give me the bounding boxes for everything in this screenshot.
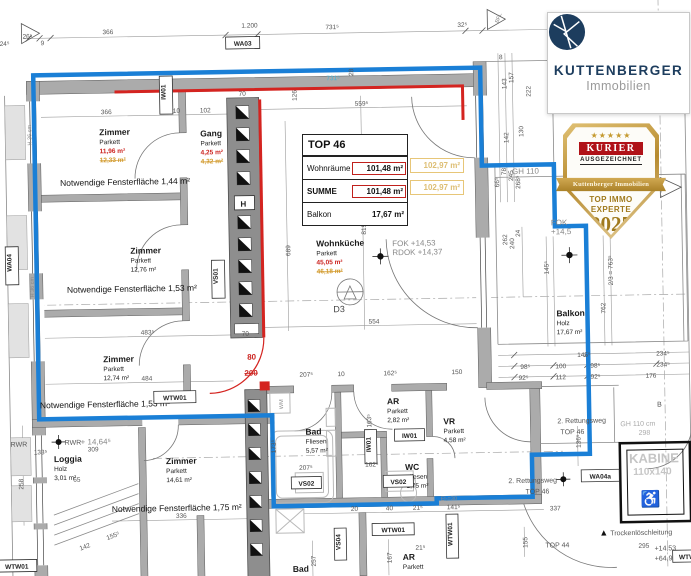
room-label-bad2: Bad [293,564,309,574]
kurier-logo: KURIER [579,142,642,155]
component-label-iw01b: IW01 [366,437,373,453]
dim-label: 483⁵ [141,329,155,336]
wm-label: WM [279,399,285,409]
component-label-wa03: WA03 [234,41,252,48]
dim-label-changed: 80 [247,353,257,362]
room-label-zimmer2: ZimmerParkett12,76 m² [130,245,162,274]
dim-label: 163⁵ [366,414,373,428]
dim-label: 92⁵ [519,375,529,382]
window-note-3: Notwendige Fensterfläche 1,53 m² [40,398,170,410]
dim-label: 257 [311,555,318,566]
room-label-balkon: BalkonHolz17,67 m² [556,308,585,336]
dim-label: 21⁵ [415,545,425,552]
dim-label: 142 [79,542,92,553]
top46-note-2: TOP 46 [525,488,549,495]
rwr-note-2: RWR [65,440,82,447]
dim-label: 222 [525,85,532,96]
dim-label: 731⁵ [325,24,339,31]
dim-label: 554 [369,318,380,325]
room-label-ar: ARParkett2,82 m² [387,396,410,424]
dim-label: 32⁵ [457,22,467,29]
svg-text:WC: WC [405,462,419,472]
dim-label: 141⁵ [447,504,461,511]
badge-ribbon: Kuttenberger Immobilien [556,177,666,192]
survey-markers [48,245,581,495]
component-label-wa04: WA04 [6,254,13,272]
dim-label: 142 [503,132,510,143]
dim-label: 28 [348,68,355,76]
room-label-gang: GangParkett4,25 m²4,32 m² [200,128,224,165]
brand-logo-icon [600,21,638,59]
room-label-zimmer4: ZimmerParkett14,61 m² [166,456,198,485]
dim-label: 207⁵ [299,465,313,472]
svg-text:11,96 m²: 11,96 m² [99,148,126,155]
svg-text:Holz: Holz [54,466,67,473]
dim-label: 20 [351,506,359,513]
dim-label: 336 [176,513,187,520]
table-row-balkon: Balkon 17,67 m² [303,202,407,225]
gh-note-2: GH 110 cm [620,421,655,429]
dim-label: 1.200 [241,22,258,29]
revised-area-summe: 102,97 m² [410,180,464,195]
dim-label: 167 [387,552,394,563]
svg-text:Fliesen: Fliesen [306,438,327,445]
dim-label: 92⁵ [590,374,600,381]
dim-label: 366 [101,109,112,116]
dim-label: 130 [518,126,525,137]
svg-text:Parkett: Parkett [130,257,151,264]
dim-label: 26⁵ [22,33,32,40]
svg-text:Zimmer: Zimmer [99,127,131,138]
svg-text:AR: AR [387,396,399,406]
row-label: Balkon [303,210,356,219]
dim-label: 10 [337,371,345,378]
component-label-iw01a: IW01 [160,84,167,100]
svg-text:Loggia: Loggia [54,454,82,464]
dim-label: 9 [41,40,45,47]
svg-text:46,18 m²: 46,18 m² [317,268,344,275]
dim-label: 2/3 = 763⁵ [607,255,615,285]
dim-label: 234⁵ [656,350,670,357]
dim-label: 10 [173,108,181,115]
component-label-wtw01d: WTW01 [5,564,29,571]
dim-label: 126 [291,90,298,101]
dim-label: 112 [556,374,567,381]
dim-label: 8 [499,54,503,61]
component-label-vs02b: VS02 [390,479,406,486]
room-label-zimmer1: ZimmerParkett11,96 m²12,33 m² [99,127,131,165]
dim-label: 155 [522,537,529,548]
dim-label: 162⁵ [365,461,379,468]
svg-text:17,67 m²: 17,67 m² [557,329,584,336]
revised-area-wohnraeume: 102,97 m² [410,158,464,173]
room-label-ar2: ARParkett [403,552,424,571]
dim-label: 78 [501,168,508,176]
svg-text:Parkett: Parkett [387,408,408,415]
b-axis-label: B [657,401,662,408]
svg-text:Parkett: Parkett [166,468,187,475]
svg-text:Zimmer: Zimmer [130,245,162,256]
wheelchair-icon: ♿ [641,490,661,509]
dim-label: 234⁵ [656,361,670,368]
dim-label: 40 [386,505,394,512]
svg-text:12,33 m²: 12,33 m² [100,157,127,164]
row-value: 101,48 m² [352,162,406,175]
svg-text:4,25 m²: 4,25 m² [201,149,224,156]
svg-text:Gang: Gang [200,128,222,138]
svg-text:4,58 m²: 4,58 m² [444,437,467,444]
dim-label: 366 [102,29,113,36]
elevator-label: KABINE [629,450,679,466]
svg-text:Parkett: Parkett [103,366,124,373]
svg-text:2,82 m²: 2,82 m² [387,417,410,424]
row-value: 17,67 m² [356,210,407,219]
dim-label: 762 [600,302,607,313]
window-note-2: Notwendige Fensterfläche 1,53 m² [67,283,197,295]
dim-label-old: 200 [244,369,258,378]
dim-label: 176 [645,373,656,380]
dim-label: 24⁵ [0,41,10,48]
row-label: Wohnräume [303,164,352,173]
dim-label: 102 [200,107,211,114]
badge-title-line1: TOP IMMO [589,195,632,204]
svg-text:12,76 m²: 12,76 m² [131,266,158,273]
dim-label: 66⁵ [494,177,501,187]
dim-label: 309 [88,446,99,453]
svg-text:14,61 m²: 14,61 m² [166,477,193,484]
window-note-1: Notwendige Fensterfläche 1,44 m² [60,176,190,188]
award-badge: ★★★★★ KURIER AUSGEZEICHNET TOP IMMO EXPE… [563,121,659,239]
chimney-shaft [227,97,263,338]
svg-text:12,74 m²: 12,74 m² [103,375,130,382]
svg-text:Parkett: Parkett [200,140,221,147]
dim-label: 65 [73,477,81,484]
stars-icon: ★★★★★ [591,131,632,140]
badge-award-text: AUSGEZEICHNET [580,157,642,165]
svg-text:Parkett: Parkett [99,139,120,146]
component-label-wa04a: WA04a [590,473,612,480]
dim-label: 155⁵ [106,531,121,542]
dim-label: 173⁵ [271,439,278,453]
svg-text:45,05 m²: 45,05 m² [316,259,343,266]
svg-text:Holz: Holz [557,320,570,327]
component-label-vs02a: VS02 [298,481,314,488]
dim-label: 484 [141,375,152,382]
rwr-note: RWR [11,442,28,449]
dry-riser-note: Trockenlöschleitung [610,529,672,537]
area-table: TOP 46 Wohnräume 101,48 m² SUMME 101,48 … [302,134,408,226]
brand-logo: KUTTENBERGER Immobilien [547,12,690,114]
dim-label: 145⁵ [577,352,591,359]
svg-text:Parkett: Parkett [403,564,424,571]
dim-label: 150 [451,369,462,376]
room-label-vr: VRParkett4,58 m² [443,416,466,444]
area-table-title: TOP 46 [303,135,407,156]
svg-text:Parkett: Parkett [316,250,337,257]
component-label-iw01c: IW01 [402,433,418,440]
escape-route-note: 2. Rettungsweg [557,417,606,425]
parapet-note-1: H 36 cm [27,125,33,146]
escape-route-note-2: 2. Rettungsweg [508,477,557,485]
dim-label: 295 [638,543,649,550]
component-label-vs04: VS04 [335,534,342,550]
component-label-wtw01e: WTW01 [679,554,691,561]
room-label-wohnkueche: WohnkücheParkett45,05 m²46,18 m² [316,238,365,276]
brand-name: KUTTENBERGER [548,63,689,78]
table-row-wohnraeume: Wohnräume 101,48 m² [303,156,407,179]
brand-subtitle: Immobilien [548,79,689,93]
row-value: 101,48 m² [352,185,406,198]
badge-year: 2025 [590,214,632,235]
dim-label: 136⁵ [576,434,583,448]
dim-label: 240 [509,238,516,249]
rwr-level: + 14,64⁵ [81,437,111,447]
dim-label: 245 [508,170,515,181]
component-label-wtw01c: WTW01 [447,522,454,546]
dim-label: 98⁵ [520,364,530,371]
dim-label: 337 [550,505,561,512]
loggia-steps [53,484,139,545]
dim-label: 98⁵ [590,363,600,370]
dim-label: 731⁵ [326,75,340,82]
svg-text:VR: VR [443,416,455,426]
component-label-vs01: VS01 [213,268,220,284]
d3-label: D3 [333,304,345,314]
dim-label: 145⁵ [544,261,551,275]
dim-label: 207⁵ [299,372,313,379]
dim-label: 70 [242,331,250,338]
svg-text:4,32 m²: 4,32 m² [201,158,224,165]
h-shaft-label: H [240,200,246,209]
table-row-summe: SUMME 101,48 m² [303,179,407,202]
dim-label: 162⁵ [383,370,397,377]
dim-label: 21⁵ [413,505,423,512]
el-note: El₂=30 [441,496,457,502]
component-label-wtw01a: WTW01 [163,395,187,402]
rdok-level: RDOK +14,37 [392,247,443,257]
svg-text:Wohnküche: Wohnküche [316,238,364,249]
svg-text:Balkon: Balkon [556,308,585,318]
dim-label: 298 [638,430,650,437]
hydrant-icon: ▲ [599,527,608,537]
dim-label: 70 [239,91,247,98]
svg-text:AR: AR [403,552,415,562]
svg-text:Bad: Bad [305,426,321,436]
dim-label: 100 [555,363,566,370]
elevator-size-label: 110x140 [633,466,672,478]
dim-label: 268⁵ [515,175,522,189]
gh-note: GH 110 [512,167,540,176]
room-label-zimmer3: ZimmerParkett12,74 m² [103,354,135,383]
diffuser-symbol [337,279,363,305]
svg-text:Zimmer: Zimmer [166,456,198,467]
component-label-wtw01b: WTW01 [381,527,405,534]
dim-label: 157 [508,72,515,83]
dim-label: 133⁵ [34,449,48,456]
svg-text:Parkett: Parkett [443,428,464,435]
dim-label: 258 [18,478,25,489]
floorplan-page: KABINE 110x140 ♿ ZimmerParkett11,96 m²12… [0,0,691,576]
parapet-note-2: H 36 cm [30,276,36,297]
dim-label: 689 [285,245,292,256]
row-label: SUMME [303,187,352,196]
dim-label: 24 [515,229,522,237]
dim-label: 559⁵ [355,101,369,108]
svg-text:5,57 m²: 5,57 m² [306,447,329,454]
svg-text:Zimmer: Zimmer [103,354,135,365]
top44-note: TOP 44 [545,542,569,549]
